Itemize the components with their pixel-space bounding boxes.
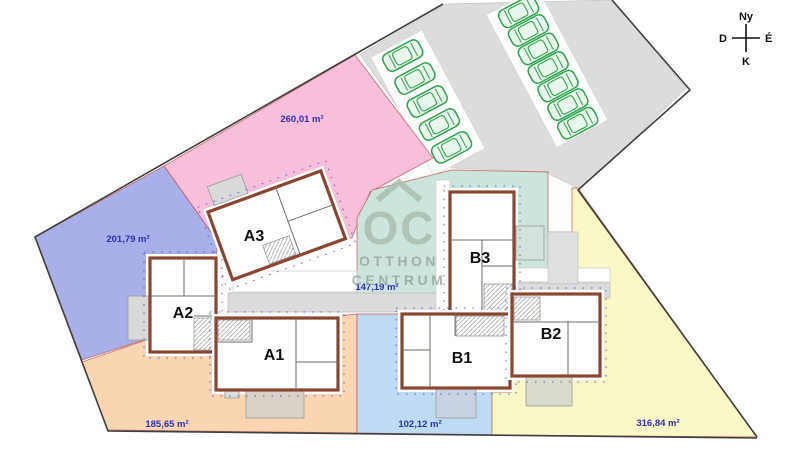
compass-bottom-label: K: [742, 56, 750, 68]
site-plan: A3 A2 A1 B3 B1 B2 260,01 m² 201,79 m² 18…: [0, 0, 800, 450]
area-label-yellow: 316,84 m²: [636, 418, 679, 429]
unit-label-b1: B1: [452, 350, 473, 367]
compass-right-label: É: [765, 32, 772, 45]
terrace: [246, 390, 304, 418]
terrace: [436, 388, 476, 418]
area-label-orange: 185,65 m²: [145, 419, 188, 430]
walkway-gray: [228, 293, 438, 312]
watermark-line2: CENTRUM: [352, 272, 447, 288]
unit-label-a3: A3: [244, 228, 265, 245]
site-plan-canvas: A3 A2 A1 B3 B1 B2 260,01 m² 201,79 m² 18…: [0, 0, 800, 450]
unit-label-b2: B2: [541, 326, 562, 343]
area-label-pink: 260,01 m²: [280, 114, 323, 125]
compass-left-label: D: [719, 33, 727, 45]
watermark-line1: OTTHON: [359, 253, 439, 269]
terrace: [128, 296, 150, 340]
area-label-blue: 102,12 m²: [398, 419, 441, 430]
watermark-monogram: OC: [363, 202, 436, 254]
unit-label-a1: A1: [264, 347, 285, 364]
stairs: [514, 297, 540, 320]
area-label-lavender: 201,79 m²: [106, 234, 149, 245]
unit-label-b3: B3: [470, 250, 491, 267]
compass-top-label: Ny: [739, 11, 754, 23]
stairs: [218, 320, 250, 340]
stairs: [456, 316, 504, 336]
walkway-pad: [548, 232, 578, 284]
unit-label-a2: A2: [173, 305, 194, 322]
terrace: [526, 376, 572, 406]
